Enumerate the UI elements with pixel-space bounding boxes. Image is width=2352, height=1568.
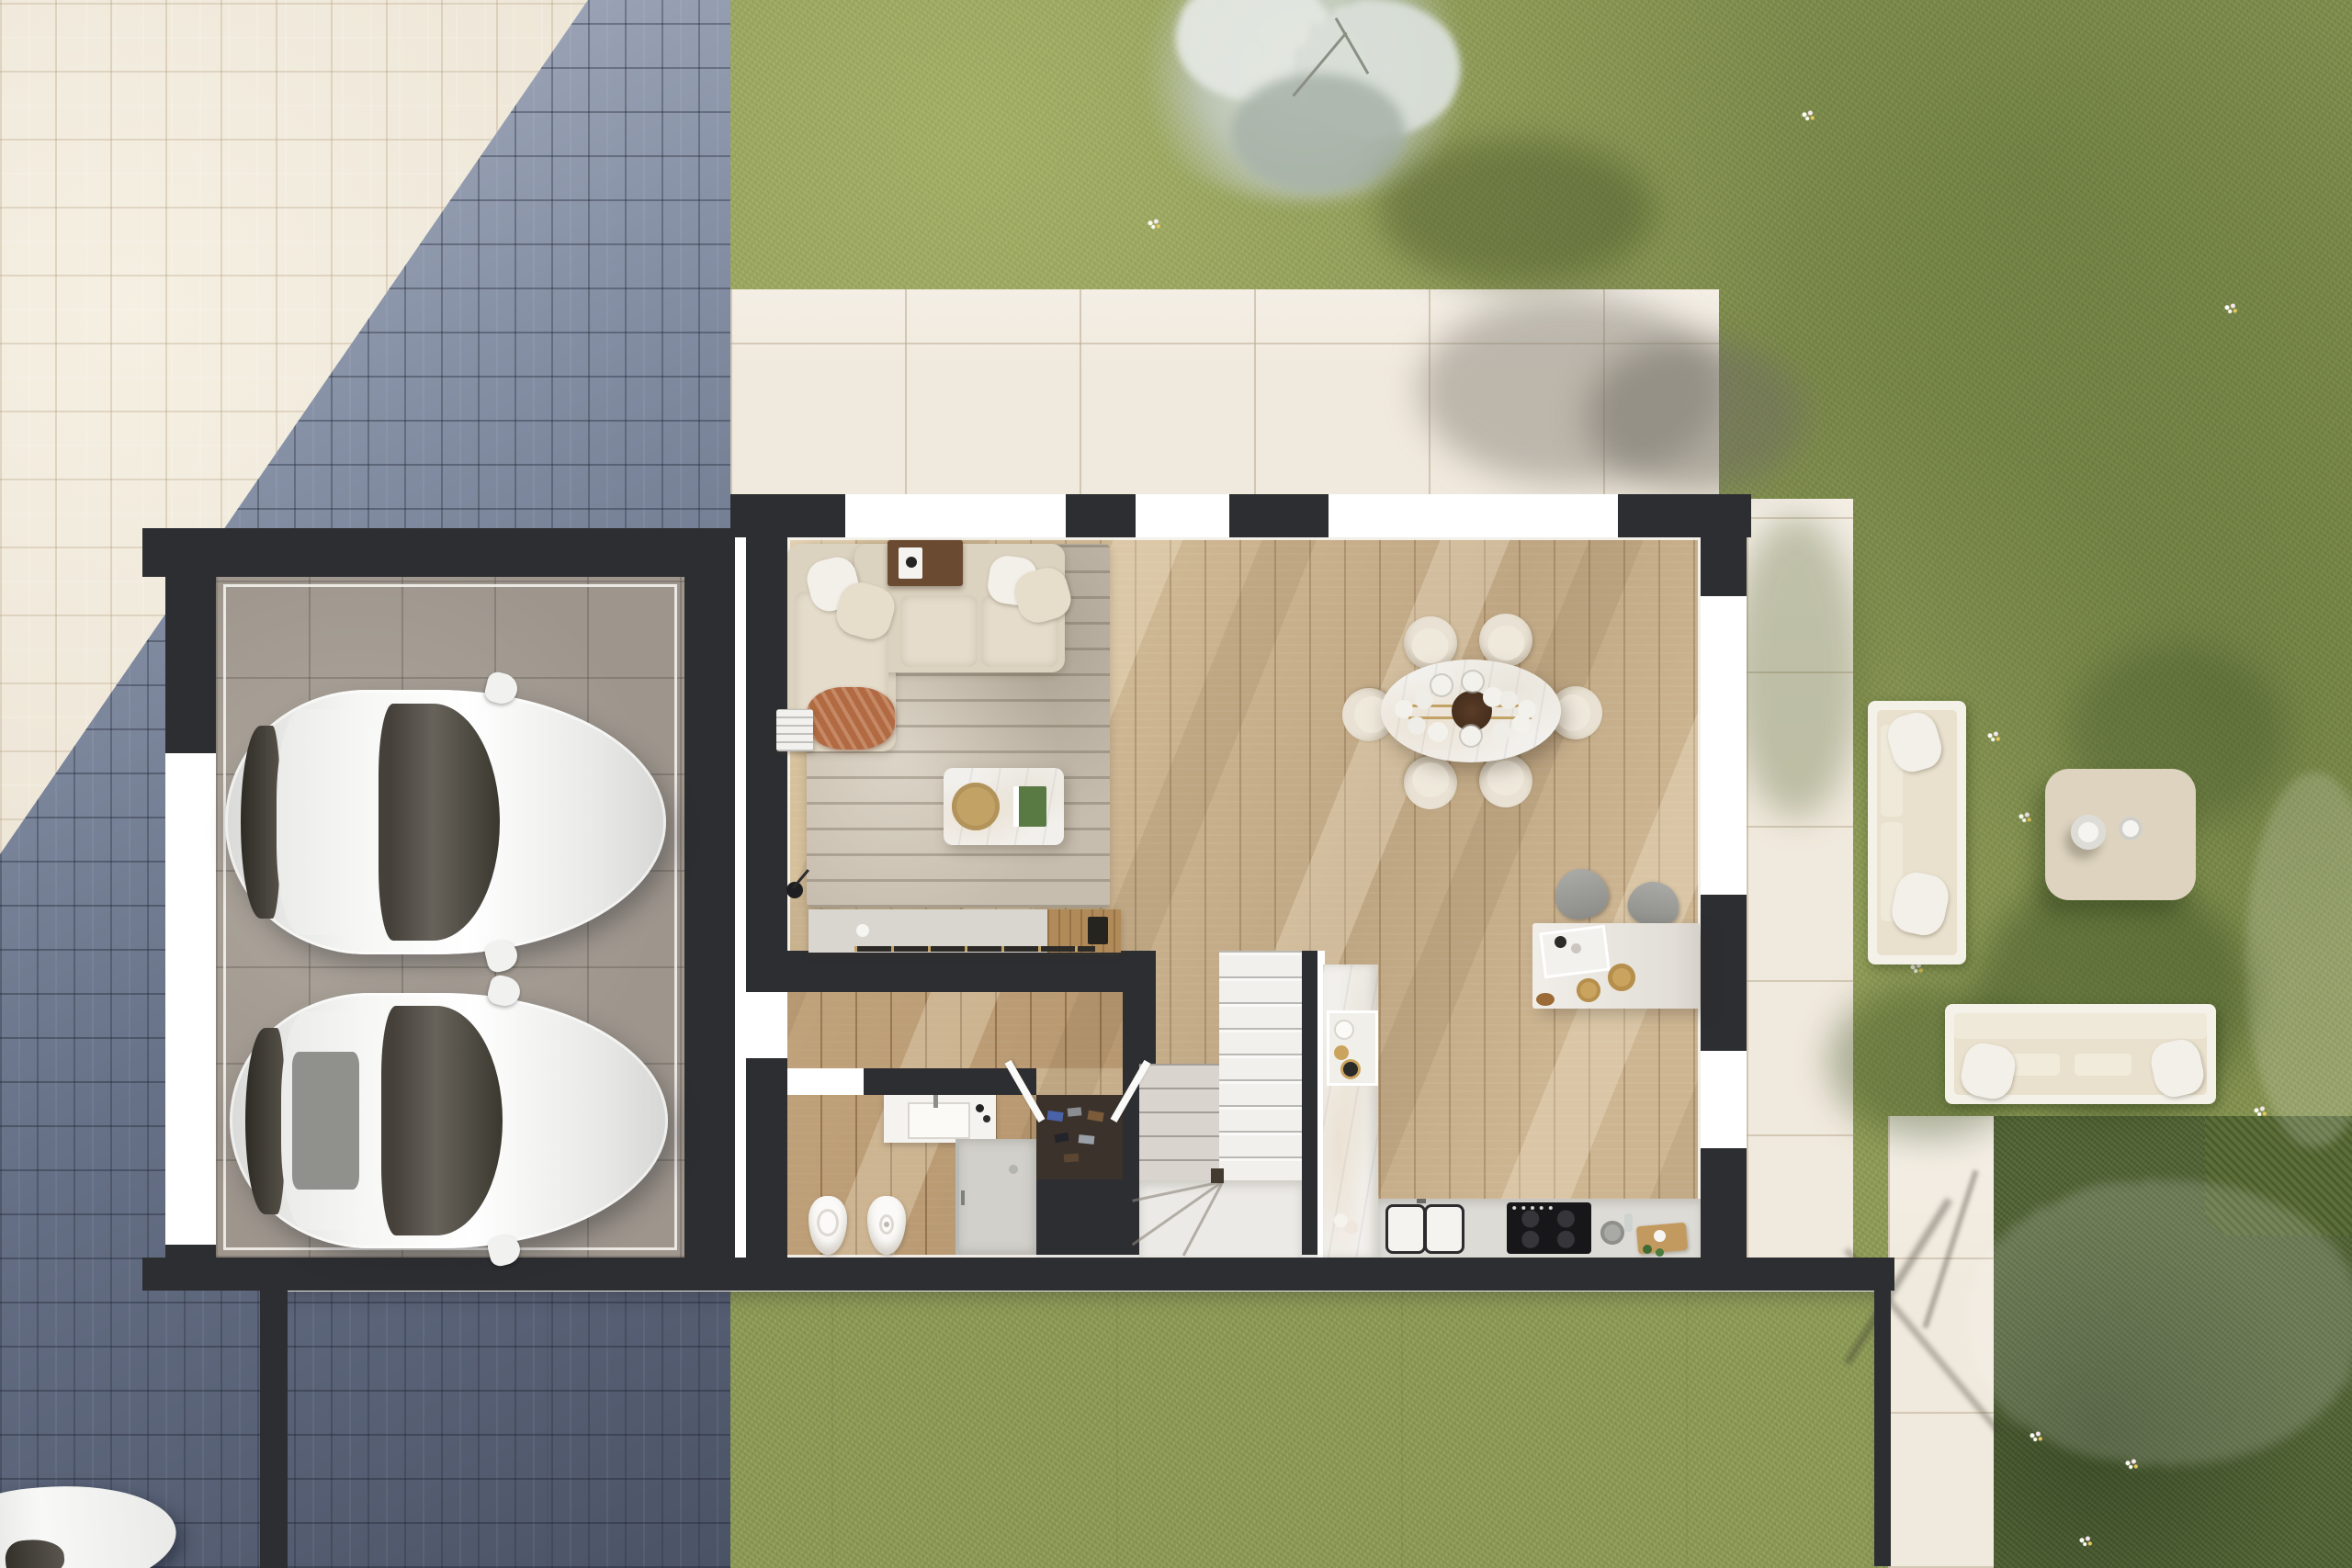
outdoor-sofa-horizontal bbox=[1945, 1004, 2216, 1104]
wall-north-corner bbox=[1618, 494, 1751, 537]
flower-patch bbox=[2223, 303, 2238, 314]
chandelier-globe bbox=[1408, 716, 1426, 735]
garage-wall-east bbox=[684, 528, 735, 1291]
car-roof bbox=[277, 709, 380, 935]
chandelier-globe bbox=[1461, 726, 1481, 746]
pot bbox=[1600, 1221, 1624, 1245]
stairs-winder-landing bbox=[1139, 1180, 1302, 1258]
flower-bouquet bbox=[1329, 1205, 1363, 1249]
outdoor-sofa-vertical bbox=[1868, 701, 1966, 964]
wall-east bbox=[1701, 537, 1747, 596]
car-bottom bbox=[225, 987, 673, 1254]
shoe bbox=[1068, 1107, 1082, 1117]
garage-wall-south bbox=[142, 1258, 730, 1291]
sink-basin bbox=[1424, 1204, 1464, 1254]
soap-jar bbox=[983, 1115, 990, 1122]
car-sunroof bbox=[292, 1052, 359, 1190]
plate bbox=[1336, 1021, 1352, 1038]
wall-east bbox=[1701, 895, 1747, 1051]
car-rear-window bbox=[245, 1028, 286, 1214]
vanity-faucet bbox=[933, 1095, 938, 1108]
driveway-slab bbox=[262, 1291, 1877, 1568]
chandelier-globe bbox=[1415, 691, 1433, 709]
trim-line bbox=[1698, 540, 1701, 1258]
kitchen-island bbox=[1532, 923, 1700, 1009]
bottle bbox=[1624, 1213, 1633, 1232]
shower-glass bbox=[955, 1139, 959, 1255]
flower-patch bbox=[1801, 110, 1815, 121]
wall-south bbox=[730, 1258, 1894, 1291]
soap-jar bbox=[976, 1104, 984, 1112]
toilet-seat bbox=[817, 1209, 839, 1236]
garden-fence bbox=[1874, 1291, 1891, 1566]
shoe bbox=[1054, 1133, 1069, 1143]
gold-tray bbox=[952, 783, 1000, 830]
flower-patch bbox=[2078, 1536, 2093, 1547]
seat-bolster bbox=[2075, 1054, 2131, 1076]
garage-wall-west bbox=[165, 577, 216, 753]
chandelier-globe bbox=[1463, 671, 1483, 692]
garage-wall-north bbox=[142, 528, 735, 577]
bowl bbox=[2119, 817, 2143, 840]
croissant bbox=[1536, 993, 1555, 1006]
green-book bbox=[1013, 786, 1046, 827]
kitchen-counter-left bbox=[1323, 964, 1378, 1258]
chandelier-globe bbox=[1395, 700, 1413, 718]
entry-wardrobe bbox=[1036, 1095, 1123, 1179]
cup bbox=[1654, 1230, 1666, 1242]
outdoor-table bbox=[2045, 769, 2196, 900]
sink-faucet bbox=[1417, 1199, 1426, 1203]
shoe bbox=[1087, 1111, 1103, 1122]
cooktop bbox=[1507, 1202, 1591, 1254]
driveway-side-wall bbox=[260, 1291, 288, 1568]
kitchen-counter-bottom bbox=[1378, 1199, 1701, 1258]
sofa-back-band bbox=[1954, 1013, 2207, 1039]
chandelier-globe bbox=[1499, 691, 1518, 709]
bidet-drain bbox=[884, 1222, 889, 1227]
gold-plate bbox=[1608, 964, 1635, 991]
chandelier-globe bbox=[1512, 715, 1531, 733]
wall-gap bbox=[735, 528, 746, 1291]
terracotta-throw bbox=[807, 687, 895, 750]
wall-north bbox=[730, 494, 845, 537]
wall-living-entry bbox=[746, 951, 1139, 992]
decor-dish bbox=[856, 924, 869, 937]
soundbar bbox=[854, 946, 1095, 952]
wall-west bbox=[746, 537, 787, 992]
wall-north bbox=[1229, 494, 1329, 537]
gold-plate-small bbox=[1334, 1045, 1349, 1060]
wall-west bbox=[746, 1058, 787, 1291]
flower-patch bbox=[1986, 731, 2001, 742]
stairs-upper-flight bbox=[1219, 951, 1302, 1180]
car-rear-window bbox=[241, 726, 281, 919]
shower-drain bbox=[1009, 1165, 1018, 1174]
shoe bbox=[1079, 1134, 1095, 1145]
chandelier-globe bbox=[1428, 722, 1448, 742]
floor-plan-scene bbox=[0, 0, 2352, 1568]
garage-wall-west bbox=[165, 1245, 216, 1258]
bowl bbox=[2071, 815, 2106, 850]
herb-jar bbox=[1643, 1245, 1652, 1254]
decor-box bbox=[1088, 917, 1108, 944]
shoe bbox=[1046, 1111, 1063, 1122]
chandelier-globe bbox=[1431, 675, 1452, 695]
wall-north bbox=[1066, 494, 1136, 537]
blossom-tree bbox=[1084, 0, 1599, 248]
console-speaker bbox=[906, 557, 917, 568]
island-cup bbox=[1571, 943, 1581, 953]
shower-handle bbox=[961, 1190, 965, 1205]
bath-vanity bbox=[884, 1095, 996, 1143]
herb-jar bbox=[1656, 1248, 1664, 1257]
stair-void bbox=[1211, 1168, 1224, 1183]
gold-plate bbox=[1577, 978, 1600, 1002]
hedge bbox=[2205, 1116, 2352, 1235]
garden-path bbox=[1888, 1116, 1996, 1568]
wall-stair-kitchen bbox=[1302, 951, 1317, 1258]
car-top bbox=[220, 684, 671, 960]
dark-bowl bbox=[1343, 1062, 1358, 1077]
dining-chair bbox=[1402, 754, 1460, 812]
bathroom-door-gap bbox=[787, 1068, 864, 1095]
sink-basin bbox=[1385, 1204, 1426, 1254]
dried-plant bbox=[821, 913, 853, 944]
flower-patch bbox=[2018, 812, 2032, 823]
shoe bbox=[1064, 1153, 1080, 1162]
side-walkway-tiles bbox=[1747, 499, 1853, 1291]
stairs-lower-flight bbox=[1139, 1064, 1219, 1180]
shower bbox=[955, 1139, 1036, 1255]
flower-patch bbox=[2029, 1431, 2043, 1442]
sofa-cushion bbox=[900, 595, 978, 667]
console-table bbox=[888, 540, 963, 586]
island-cup bbox=[1555, 936, 1566, 948]
side-table-books bbox=[776, 709, 813, 751]
terrace-tiles bbox=[730, 289, 1719, 499]
chandelier-globe bbox=[1492, 722, 1510, 740]
vanity-basin bbox=[908, 1102, 970, 1139]
flower-patch bbox=[2124, 1459, 2139, 1470]
cooktop-knobs bbox=[1512, 1206, 1553, 1210]
